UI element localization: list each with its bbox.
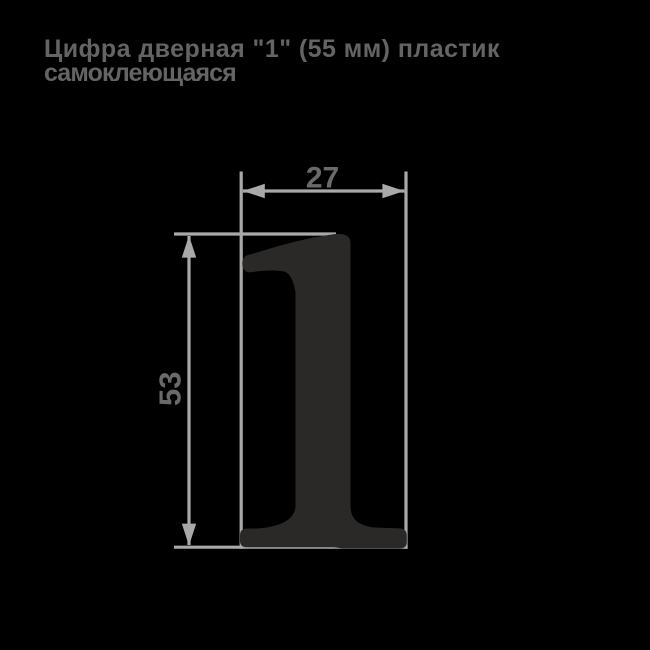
svg-text:27: 27	[306, 161, 339, 194]
svg-text:53: 53	[153, 372, 188, 406]
